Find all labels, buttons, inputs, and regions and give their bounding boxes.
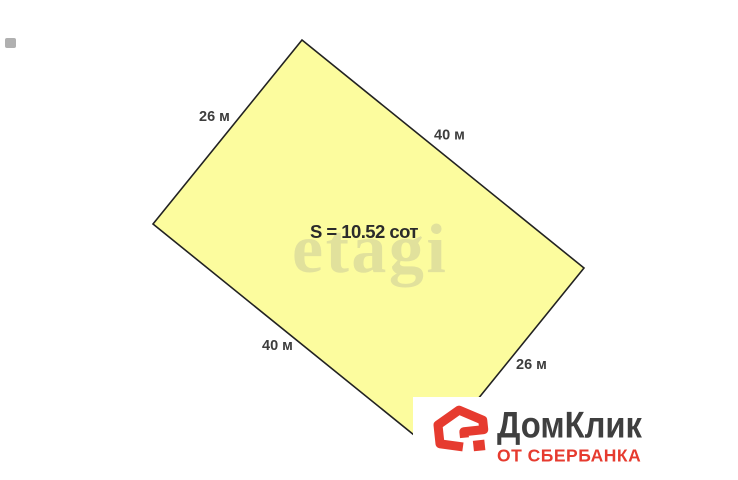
svg-text:ОТ СБЕРБАНКА: ОТ СБЕРБАНКА: [497, 446, 641, 466]
svg-text:26 м: 26 м: [199, 109, 230, 125]
svg-text:40 м: 40 м: [434, 128, 465, 144]
svg-text:S = 10.52 сот: S = 10.52 сот: [310, 221, 418, 242]
svg-text:ДомКлик: ДомКлик: [497, 405, 642, 446]
svg-text:26 м: 26 м: [516, 357, 547, 373]
svg-text:40 м: 40 м: [262, 338, 293, 354]
